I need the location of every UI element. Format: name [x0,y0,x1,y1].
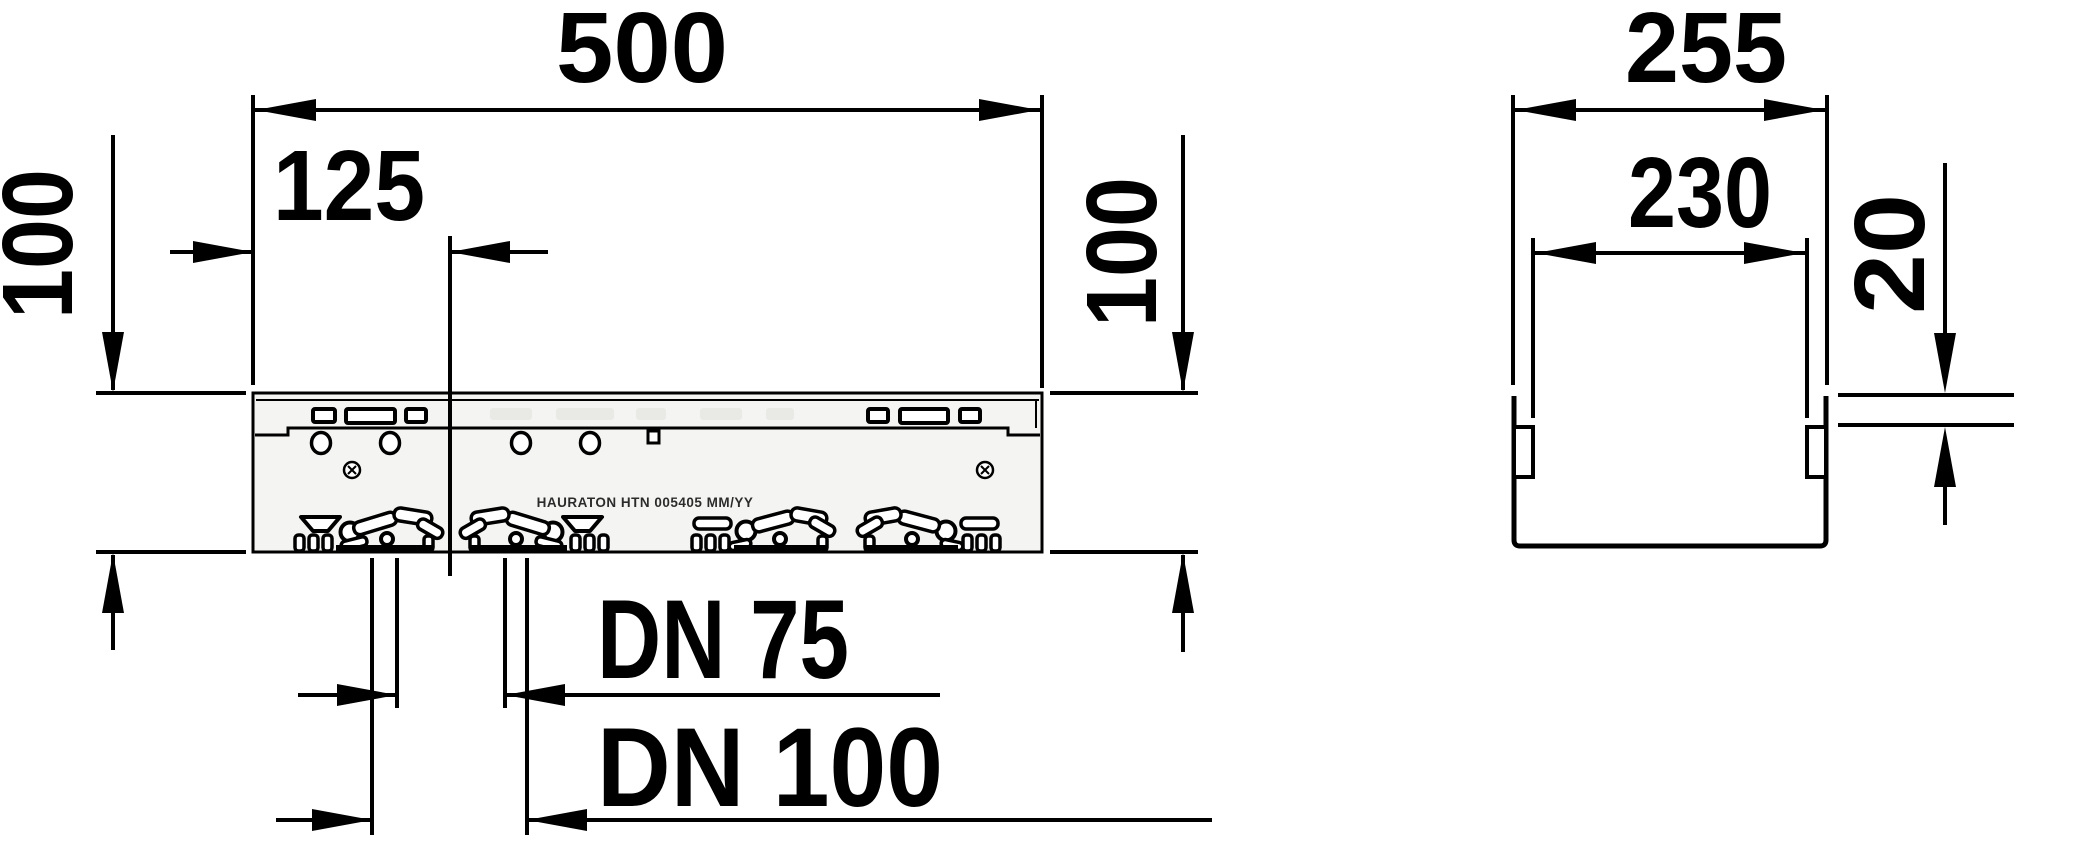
rim-slots-left [313,409,426,423]
dimension-100-left: 100 [0,135,246,650]
rim-slots-right [868,409,980,423]
dim-500-label: 500 [556,0,728,104]
arrowhead-up [1934,427,1956,487]
section-outline [1514,396,1826,546]
arrowhead-right-pointing [312,809,372,831]
arrowhead-left [1516,99,1576,121]
dim-20-label: 20 [1834,194,1946,314]
arrowhead-right-pointing [337,684,397,706]
knockout-base-bar [336,545,433,552]
dimension-100-right: 100 [1050,135,1198,652]
product-marking: HAURATON HTN 005405 MM/YY [537,495,754,510]
dim-dn100-label: DN 100 [597,705,943,830]
arrowhead-up [102,553,124,613]
arrowhead-up [1172,553,1194,613]
dim-125-label: 125 [273,130,425,242]
section-view: 255 230 20 [1513,0,2014,546]
arrowhead-left-pointing [527,809,587,831]
arrowhead-right-pointing [193,241,253,263]
dim-100-right-label: 100 [1066,177,1178,327]
technical-drawing: HAURATON HTN 005405 MM/YY [0,0,2080,856]
edge-lip-right [1807,427,1826,477]
channel-body: HAURATON HTN 005405 MM/YY [253,393,1042,552]
screw-icon [344,462,360,478]
arrowhead-down [1172,332,1194,392]
dimension-20: 20 [1834,163,2014,525]
dim-255-label: 255 [1625,0,1787,104]
front-view: HAURATON HTN 005405 MM/YY [0,0,1212,835]
arrowhead-right [979,99,1039,121]
screw-icon [977,462,993,478]
dim-dn75-label: DN 75 [597,577,849,702]
dimension-dn75: DN 75 [298,558,940,708]
arrowhead-left [1536,242,1596,264]
edge-lip-left [1514,427,1533,477]
arrowhead-left-pointing [450,241,510,263]
arrowhead-down [102,332,124,392]
knockout-base-bar [734,545,827,552]
rim-notch [648,431,659,443]
dim-100-left-label: 100 [0,169,94,319]
dimension-230: 230 [1533,137,1807,418]
arrowhead-down [1934,333,1956,393]
arrowhead-left [256,99,316,121]
dim-230-label: 230 [1628,137,1772,249]
arrowhead-left-pointing [505,684,565,706]
